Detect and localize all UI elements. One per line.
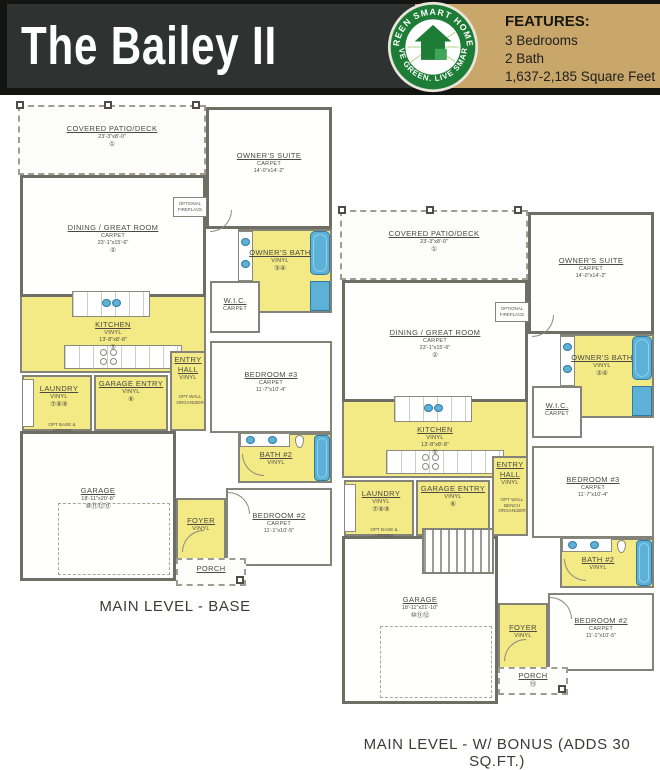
kitchen-counter <box>64 345 182 369</box>
note-opt-base-uppers: OPT BASE & UPPERS <box>366 527 402 538</box>
sink-icon <box>568 541 577 549</box>
laundry-cabinets <box>344 484 356 532</box>
stove-burner-icon <box>110 358 117 365</box>
patio-post <box>338 206 346 214</box>
bathtub-icon <box>310 231 330 275</box>
kitchen-sink-icon <box>112 299 121 307</box>
bathtub-icon <box>632 336 652 380</box>
header-charcoal-area: The Bailey II FEATURES: 3 Bedrooms 2 Bat… <box>7 4 660 88</box>
kitchen-island <box>72 291 150 317</box>
features-heading: FEATURES: <box>505 13 655 30</box>
patio-post <box>104 101 112 109</box>
kitchen-counter <box>386 450 504 474</box>
room-entry-hall <box>492 456 528 536</box>
room-covered-patio <box>340 210 528 280</box>
feature-sqft: 1,637-2,185 Square Feet <box>505 68 655 86</box>
room-wic <box>532 386 582 438</box>
stove-burner-icon <box>100 349 107 356</box>
patio-post <box>16 101 24 109</box>
feature-bedrooms: 3 Bedrooms <box>505 32 655 50</box>
kitchen-sink-icon <box>424 404 433 412</box>
porch-post <box>236 576 244 584</box>
patio-post <box>426 206 434 214</box>
room-bedroom-3 <box>532 446 654 538</box>
stove-burner-icon <box>100 358 107 365</box>
note-opt-base-uppers: OPT BASE & UPPERS <box>44 422 80 433</box>
room-covered-patio <box>18 105 206 175</box>
shower-icon <box>310 281 330 311</box>
floor-plan-bonus: OPTIONAL FIREPLACE COVERED PATIO/DECK 23… <box>336 203 658 708</box>
features-block: FEATURES: 3 Bedrooms 2 Bath 1,637-2,185 … <box>505 13 655 87</box>
sink-icon <box>241 238 250 246</box>
kitchen-sink-icon <box>434 404 443 412</box>
caption-main-level-base: MAIN LEVEL - BASE <box>14 598 336 615</box>
sink-icon <box>246 436 255 444</box>
room-dining-great-room <box>342 280 528 402</box>
room-garage-entry <box>94 375 168 431</box>
stove-burner-icon <box>432 463 439 470</box>
stove-burner-icon <box>422 463 429 470</box>
stove-burner-icon <box>432 454 439 461</box>
kitchen-island <box>394 396 472 422</box>
sink-icon <box>590 541 599 549</box>
garage-dashed-area <box>58 503 170 575</box>
room-bedroom-3 <box>210 341 332 433</box>
patio-post <box>514 206 522 214</box>
sink-icon <box>563 343 572 351</box>
sink-icon <box>268 436 277 444</box>
logo-svg: GREEN SMART HOMES LIVE GREEN. LIVE SMART… <box>387 1 479 93</box>
header-bar: The Bailey II FEATURES: 3 Bedrooms 2 Bat… <box>0 0 660 95</box>
laundry-cabinets <box>22 379 34 427</box>
kitchen-sink-icon <box>102 299 111 307</box>
note-opt-wall-organizer: OPT WALL ORGANIZER <box>173 394 207 405</box>
green-smart-homes-logo: GREEN SMART HOMES LIVE GREEN. LIVE SMART… <box>387 1 479 93</box>
stairs-to-bonus <box>422 528 494 574</box>
floor-plan-base: OPTIONAL FIREPLACE COVERED PATIO/DECK 23… <box>14 98 336 603</box>
garage-dashed-area <box>380 626 492 698</box>
shower-icon <box>632 386 652 416</box>
optional-fireplace-box: OPTIONAL FIREPLACE <box>495 302 529 322</box>
porch-post <box>558 685 566 693</box>
bathtub-icon <box>636 540 652 586</box>
room-wic <box>210 281 260 333</box>
room-dining-great-room <box>20 175 206 297</box>
room-entry-hall <box>170 351 206 431</box>
feature-bath: 2 Bath <box>505 50 655 68</box>
sink-icon <box>563 365 572 373</box>
page-title: The Bailey II <box>21 4 277 88</box>
optional-fireplace-box: OPTIONAL FIREPLACE <box>173 197 207 217</box>
sink-icon <box>241 260 250 268</box>
note-opt-wall-bench-organizer: OPT WALL BENCH ORGANIZER <box>495 497 529 514</box>
bathtub-icon <box>314 435 330 481</box>
patio-post <box>192 101 200 109</box>
stove-burner-icon <box>422 454 429 461</box>
caption-main-level-bonus: MAIN LEVEL - W/ BONUS (ADDS 30 SQ.FT.) <box>336 736 658 770</box>
stove-burner-icon <box>110 349 117 356</box>
